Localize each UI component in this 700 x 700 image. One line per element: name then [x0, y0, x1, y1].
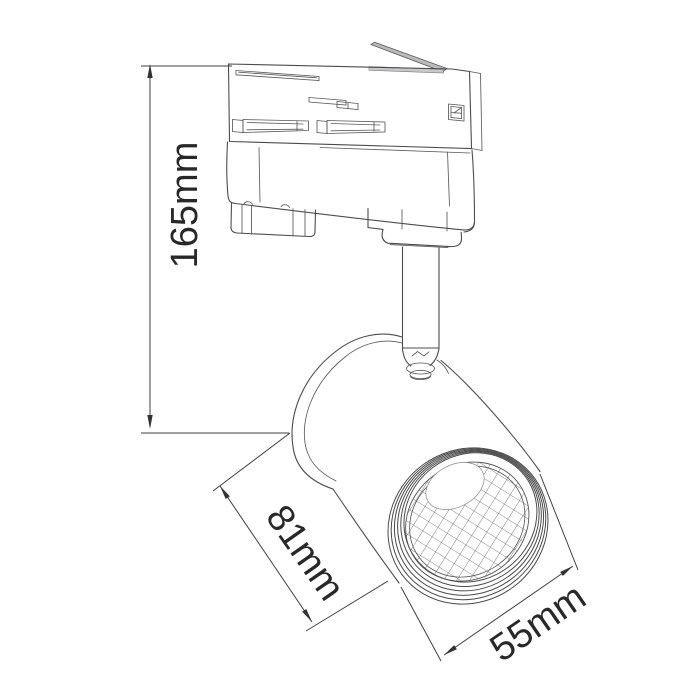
arrowhead-upperleft [220, 486, 230, 499]
adapter-body [227, 142, 475, 230]
slot-long [236, 71, 319, 81]
track-adapter [229, 42, 483, 153]
contact-clip-middle [317, 121, 385, 134]
dimension-height: 165mm [141, 64, 289, 433]
drawing-svg: 165mm 81mm 55mm [0, 0, 700, 700]
slot-middle [309, 98, 346, 106]
collar [382, 230, 461, 247]
arrowhead-left [444, 645, 457, 655]
technical-drawing: 165mm 81mm 55mm [0, 0, 700, 700]
height-label: 165mm [164, 142, 206, 269]
arrowhead-right [560, 566, 573, 576]
dimension-body-length: 81mm [213, 433, 388, 631]
contact-clip-left [233, 120, 309, 133]
terminal-block [231, 202, 316, 237]
lamp-back-arc [292, 334, 402, 489]
arrowhead-lowerright [302, 609, 312, 622]
lamp-bottom-edge [333, 489, 399, 583]
adapter-knob [449, 104, 465, 121]
pivot-base [368, 209, 475, 248]
arrowhead-down [147, 415, 152, 429]
stem [403, 247, 440, 348]
swivel-joint [403, 348, 440, 380]
body-length-label: 81mm [257, 498, 352, 609]
